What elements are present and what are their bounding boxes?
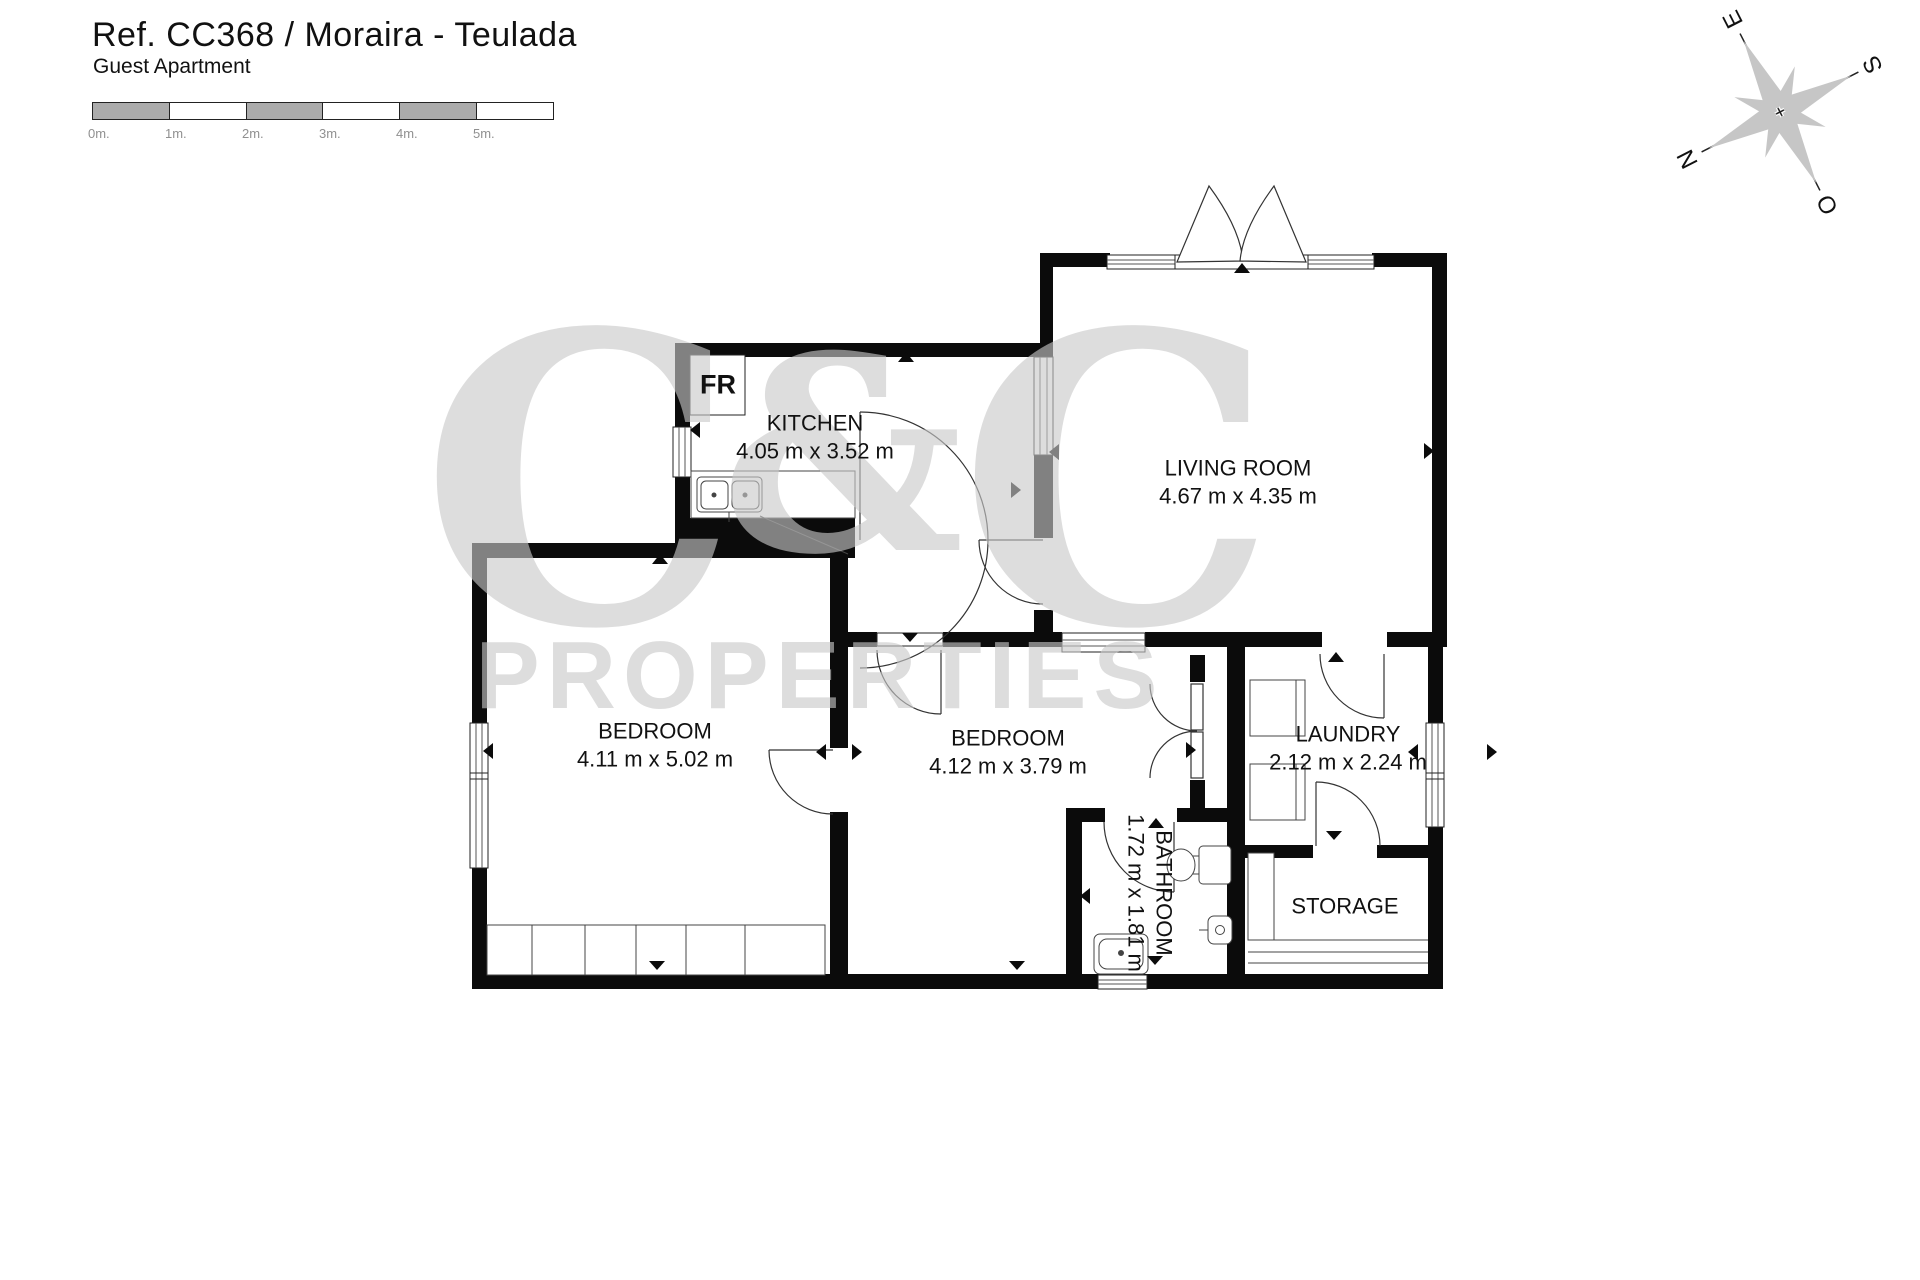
room-label-bathroom: BATHROOM 1.72 m x 1.81 m bbox=[1123, 814, 1178, 972]
scale-tick-label: 1m. bbox=[165, 126, 209, 141]
scale-segment bbox=[170, 103, 247, 119]
compass-east-label: E bbox=[1718, 6, 1749, 33]
compass-south-label: S bbox=[1857, 51, 1888, 78]
room-label-storage: STORAGE bbox=[1291, 892, 1398, 920]
compass-rose: N E S O bbox=[1625, 0, 1920, 266]
room-name: LAUNDRY bbox=[1269, 721, 1427, 749]
scale-segment bbox=[400, 103, 477, 119]
room-dims: 4.05 m x 3.52 m bbox=[736, 437, 894, 465]
scale-tick-label: 4m. bbox=[396, 126, 440, 141]
room-label-bedroom-mid: BEDROOM 4.12 m x 3.79 m bbox=[929, 725, 1087, 780]
room-label-bedroom-left: BEDROOM 4.11 m x 5.02 m bbox=[577, 718, 733, 773]
room-name: BEDROOM bbox=[929, 725, 1087, 753]
scale-segment bbox=[247, 103, 324, 119]
floorplan-drawing: N E S O bbox=[0, 0, 1920, 1280]
scale-segment bbox=[93, 103, 170, 119]
room-name: STORAGE bbox=[1291, 892, 1398, 920]
plan-title: Ref. CC368 / Moraira - Teulada bbox=[92, 16, 577, 55]
floorplan-page: N E S O C&C PROPERTIES Ref. CC368 / Mora… bbox=[0, 0, 1920, 1280]
windows bbox=[470, 255, 1444, 989]
room-label-living-room: LIVING ROOM 4.67 m x 4.35 m bbox=[1159, 455, 1317, 510]
scale-tick-label: 2m. bbox=[242, 126, 286, 141]
room-name: BEDROOM bbox=[577, 718, 733, 746]
compass-west-label: O bbox=[1811, 190, 1844, 219]
room-name: KITCHEN bbox=[736, 410, 894, 438]
compass-north-label: N bbox=[1672, 145, 1704, 173]
room-dims: 1.72 m x 1.81 m bbox=[1123, 814, 1151, 972]
room-name: LIVING ROOM bbox=[1159, 455, 1317, 483]
scale-bar bbox=[92, 102, 554, 120]
room-label-kitchen: KITCHEN 4.05 m x 3.52 m bbox=[736, 410, 894, 465]
scale-segment bbox=[323, 103, 400, 119]
scale-tick-label: 3m. bbox=[319, 126, 363, 141]
room-label-laundry: LAUNDRY 2.12 m x 2.24 m bbox=[1269, 721, 1427, 776]
scale-segment bbox=[477, 103, 553, 119]
room-dims: 2.12 m x 2.24 m bbox=[1269, 748, 1427, 776]
markers bbox=[483, 263, 1497, 970]
scale-tick-label: 5m. bbox=[473, 126, 517, 141]
fixtures bbox=[487, 355, 1428, 975]
room-dims: 4.11 m x 5.02 m bbox=[577, 745, 733, 773]
scale-tick-label: 0m. bbox=[88, 126, 132, 141]
plan-subtitle: Guest Apartment bbox=[93, 55, 251, 79]
room-dims: 4.12 m x 3.79 m bbox=[929, 752, 1087, 780]
room-name: BATHROOM bbox=[1150, 814, 1178, 972]
room-dims: 4.67 m x 4.35 m bbox=[1159, 482, 1317, 510]
fridge-label: FR bbox=[700, 370, 736, 401]
